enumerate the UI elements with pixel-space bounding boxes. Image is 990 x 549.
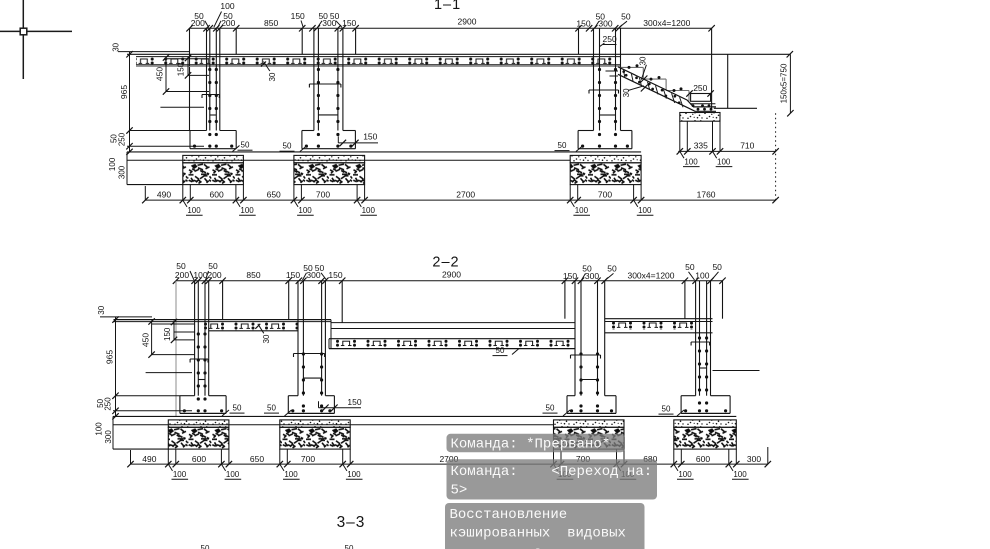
svg-text:100: 100 [173, 470, 187, 479]
svg-text:2700: 2700 [456, 190, 475, 200]
svg-text:150: 150 [328, 270, 342, 280]
svg-text:200: 200 [207, 270, 221, 280]
svg-text:650: 650 [250, 454, 264, 464]
svg-text:150: 150 [286, 270, 300, 280]
svg-text:50: 50 [546, 404, 555, 413]
svg-text:100: 100 [94, 422, 103, 436]
svg-text:300: 300 [104, 430, 113, 444]
svg-text:50: 50 [662, 405, 671, 414]
svg-text:100: 100 [226, 470, 240, 479]
svg-text:335: 335 [694, 141, 708, 151]
svg-text:850: 850 [264, 18, 278, 28]
svg-text:300x4=1200: 300x4=1200 [643, 18, 690, 28]
svg-text:700: 700 [316, 190, 330, 200]
svg-text:250: 250 [104, 397, 113, 411]
svg-text:50: 50 [267, 404, 276, 413]
svg-text:490: 490 [157, 190, 171, 200]
svg-text:Команда: <Переход на:: Команда: <Переход на: [451, 464, 653, 480]
svg-text:150: 150 [342, 18, 356, 28]
svg-text:490: 490 [142, 454, 156, 464]
svg-text:100: 100 [187, 206, 201, 215]
svg-text:965: 965 [105, 350, 115, 364]
svg-text:50: 50 [607, 264, 617, 274]
svg-text:50: 50 [233, 404, 242, 413]
svg-text:50: 50 [283, 142, 292, 151]
svg-text:100: 100 [678, 470, 692, 479]
svg-text:2900: 2900 [442, 269, 461, 279]
svg-text:3–3: 3–3 [337, 514, 366, 531]
svg-text:150: 150 [363, 132, 377, 142]
svg-text:5>: 5> [451, 483, 468, 499]
svg-text:965: 965 [119, 85, 129, 99]
svg-text:100: 100 [108, 157, 117, 171]
svg-text:50: 50 [241, 141, 250, 150]
svg-text:600: 600 [210, 190, 224, 200]
svg-text:50: 50 [621, 11, 631, 21]
svg-text:300: 300 [585, 271, 599, 281]
svg-text:50: 50 [712, 262, 722, 272]
svg-text:600: 600 [192, 454, 206, 464]
svg-text:710: 710 [740, 141, 754, 151]
svg-text:30: 30 [262, 334, 271, 343]
svg-text:100: 100 [284, 470, 298, 479]
svg-text:100: 100 [362, 206, 376, 215]
svg-text:250: 250 [693, 83, 707, 93]
svg-text:1–1: 1–1 [434, 0, 461, 13]
svg-text:250: 250 [117, 132, 126, 146]
svg-text:30: 30 [111, 42, 120, 51]
svg-text:150x5=750: 150x5=750 [780, 63, 789, 103]
svg-text:2900: 2900 [458, 16, 477, 26]
svg-text:30: 30 [622, 88, 631, 97]
svg-text:100: 100 [298, 206, 312, 215]
svg-text:100: 100 [717, 157, 731, 166]
svg-text:150: 150 [177, 62, 186, 76]
svg-text:2–2: 2–2 [432, 254, 459, 270]
svg-text:кэшированных видовых: кэшированных видовых [450, 526, 626, 542]
svg-text:450: 450 [140, 333, 150, 347]
svg-text:150: 150 [347, 397, 361, 407]
svg-text:300x4=1200: 300x4=1200 [627, 270, 674, 280]
svg-text:450: 450 [155, 67, 165, 81]
svg-text:650: 650 [267, 190, 281, 200]
svg-text:150: 150 [291, 11, 305, 21]
svg-text:150: 150 [563, 271, 577, 281]
svg-text:600: 600 [696, 454, 710, 464]
svg-text:150: 150 [163, 327, 172, 341]
svg-text:Команда: *Прервано*: Команда: *Прервано* [451, 436, 611, 452]
svg-text:100: 100 [638, 206, 652, 215]
svg-text:100: 100 [684, 157, 698, 166]
svg-text:700: 700 [301, 454, 315, 464]
svg-text:50: 50 [685, 262, 695, 272]
svg-text:100: 100 [733, 470, 747, 479]
svg-text:300: 300 [117, 165, 126, 179]
svg-text:100: 100 [695, 271, 709, 281]
svg-text:200: 200 [191, 18, 205, 28]
svg-text:30: 30 [268, 72, 277, 81]
svg-text:50: 50 [201, 544, 210, 549]
svg-text:150: 150 [576, 19, 590, 29]
svg-text:50: 50 [496, 346, 505, 355]
svg-text:1760: 1760 [697, 190, 716, 200]
svg-text:700: 700 [598, 190, 612, 200]
svg-text:200: 200 [221, 18, 235, 28]
svg-text:300: 300 [747, 454, 761, 464]
svg-text:30: 30 [639, 56, 648, 65]
svg-text:100: 100 [347, 470, 361, 479]
svg-text:200: 200 [175, 270, 189, 280]
svg-text:100: 100 [220, 1, 234, 11]
svg-text:300: 300 [306, 270, 320, 280]
svg-text:30: 30 [97, 305, 106, 314]
svg-text:50: 50 [558, 141, 567, 150]
svg-text:100: 100 [575, 206, 589, 215]
svg-text:300: 300 [598, 19, 612, 29]
svg-text:Восстановление: Восстановление [450, 507, 568, 523]
svg-text:100: 100 [240, 206, 254, 215]
svg-text:50: 50 [345, 544, 354, 549]
svg-text:300: 300 [322, 18, 336, 28]
svg-text:850: 850 [246, 270, 260, 280]
svg-text:250: 250 [603, 34, 617, 44]
